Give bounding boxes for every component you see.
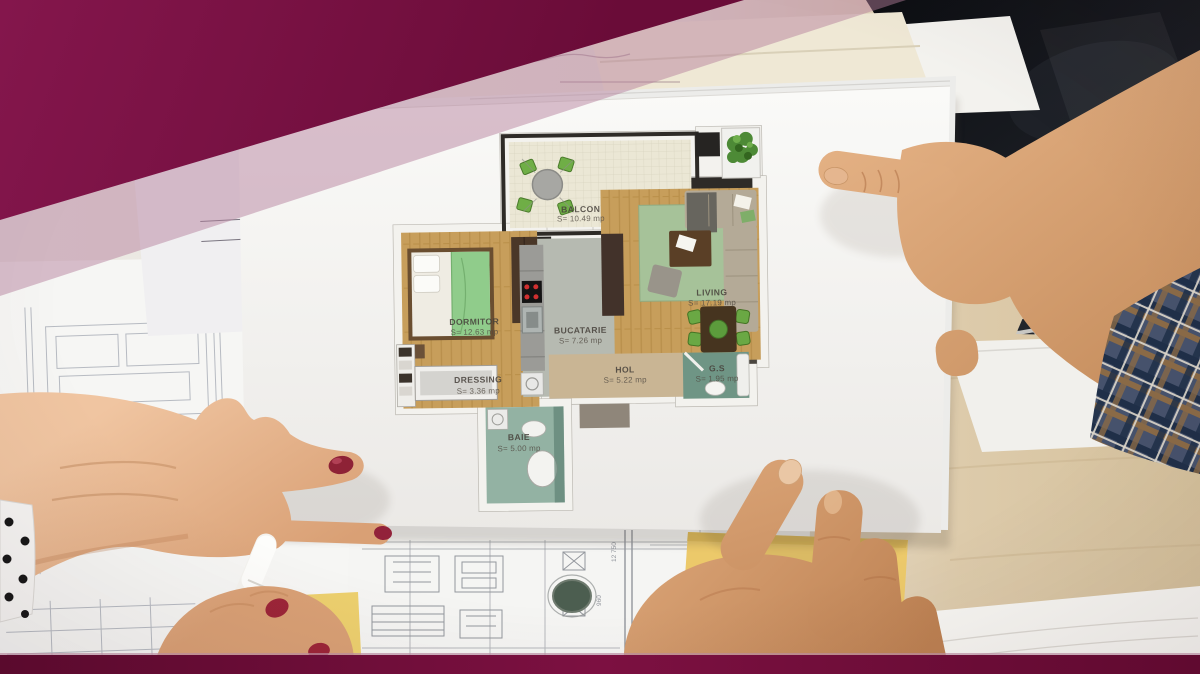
footer-brand-bar bbox=[0, 655, 1200, 674]
photo-scene: 12 750 960 bbox=[0, 0, 1200, 674]
